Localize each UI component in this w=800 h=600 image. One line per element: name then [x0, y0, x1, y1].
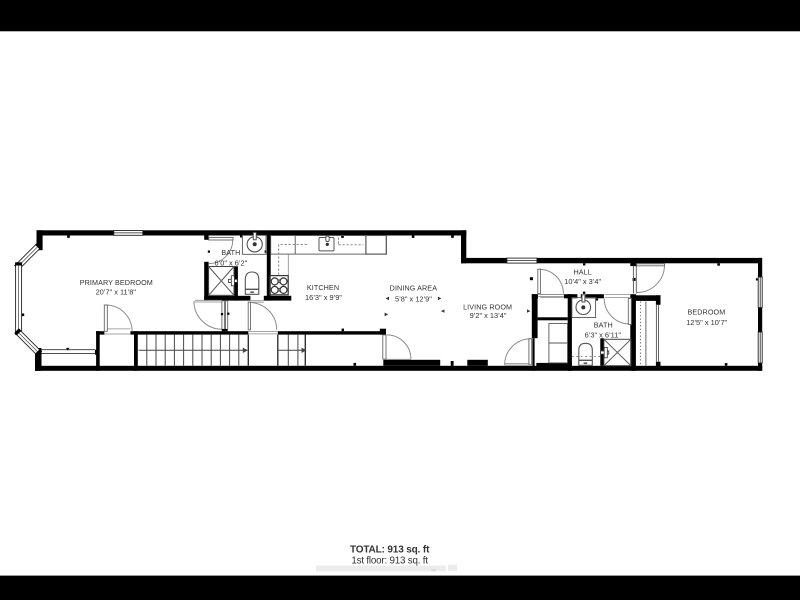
svg-text:BEDROOM: BEDROOM: [687, 308, 725, 317]
svg-text:TOTAL: 913 sq. ft: TOTAL: 913 sq. ft: [350, 545, 430, 556]
svg-text:12’5" x 10’7": 12’5" x 10’7": [686, 318, 727, 327]
svg-text:9’2" x 13’4": 9’2" x 13’4": [470, 311, 507, 320]
svg-text:HALL: HALL: [574, 268, 592, 277]
svg-text:6’0" x 6’2": 6’0" x 6’2": [215, 259, 248, 268]
svg-text:DINING AREA: DINING AREA: [390, 284, 438, 293]
svg-text:1st floor: 913 sq. ft: 1st floor: 913 sq. ft: [351, 555, 428, 566]
svg-text:PRIMARY BEDROOM: PRIMARY BEDROOM: [80, 278, 153, 287]
svg-text:BATH: BATH: [221, 248, 240, 257]
svg-text:5’8" x 12’9": 5’8" x 12’9": [395, 294, 432, 303]
svg-text:KITCHEN: KITCHEN: [307, 283, 339, 292]
svg-text:6’3" x 6’11": 6’3" x 6’11": [585, 330, 622, 339]
svg-text:10’4" x 3’4": 10’4" x 3’4": [564, 277, 601, 286]
svg-text:20’7" x 11’8": 20’7" x 11’8": [96, 288, 137, 297]
svg-text:BATH: BATH: [594, 321, 613, 330]
svg-text:16’3" x 9’9": 16’3" x 9’9": [305, 293, 342, 302]
